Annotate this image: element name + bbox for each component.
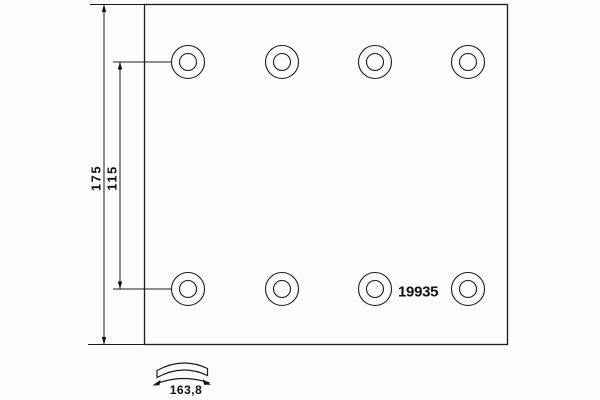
rivet-hole-inner: [367, 281, 384, 298]
rivet-hole: [172, 46, 205, 79]
arc-width-label: 163,8: [170, 383, 203, 397]
rivet-hole-inner: [460, 54, 477, 71]
rivet-hole-inner: [367, 54, 384, 71]
brake-lining-technical-drawing: 175 115 19935 163,8: [0, 0, 600, 400]
rivet-hole-inner: [274, 54, 291, 71]
hole-spacing-label: 115: [105, 165, 120, 190]
rivet-hole-inner: [180, 281, 197, 298]
rivet-hole: [266, 46, 299, 79]
rivet-hole: [452, 273, 485, 306]
rivet-hole: [359, 46, 392, 79]
rivet-hole: [359, 273, 392, 306]
rivet-hole: [172, 273, 205, 306]
rivet-hole: [266, 273, 299, 306]
arc-profile-symbol: 163,8: [153, 363, 212, 397]
overall-height-label: 175: [89, 165, 104, 191]
arrowhead-right-icon: [203, 379, 211, 385]
rivet-hole-inner: [460, 281, 477, 298]
rivet-hole-inner: [180, 54, 197, 71]
curved-lining-band: [157, 363, 208, 378]
dimension-hole-spacing: 115: [105, 62, 173, 289]
part-number-label: 19935: [398, 284, 438, 301]
rivet-holes: [172, 46, 485, 306]
arrowhead-down-icon: [102, 337, 106, 345]
rivet-hole: [452, 46, 485, 79]
drawing-canvas: 175 115 19935 163,8: [0, 0, 600, 400]
rivet-hole-inner: [274, 281, 291, 298]
arrowhead-down-icon: [118, 282, 122, 290]
arrowhead-up-icon: [118, 62, 122, 70]
arrowhead-left-icon: [153, 380, 161, 386]
arrowhead-up-icon: [102, 5, 106, 13]
